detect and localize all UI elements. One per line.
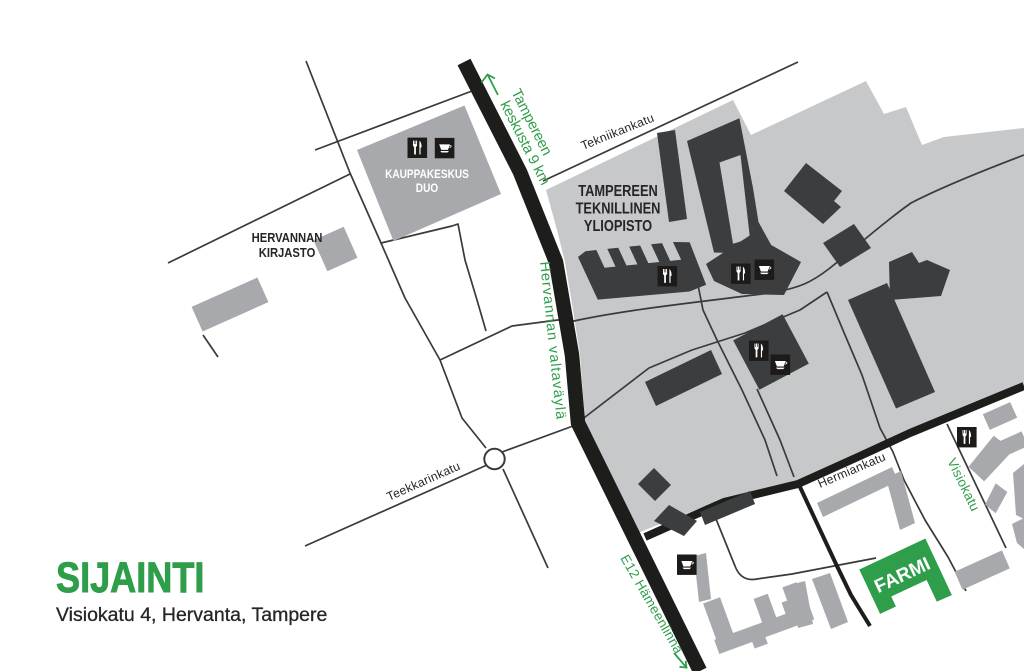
svg-text:YLIOPISTO: YLIOPISTO	[584, 217, 652, 234]
svg-text:SIJAINTI: SIJAINTI	[56, 554, 204, 602]
svg-text:DUO: DUO	[416, 182, 439, 195]
svg-text:KAUPPAKESKUS: KAUPPAKESKUS	[385, 168, 469, 181]
svg-text:KIRJASTO: KIRJASTO	[259, 245, 316, 260]
svg-text:HERVANNAN: HERVANNAN	[252, 230, 323, 245]
svg-text:Visiokatu 4, Hervanta, Tampere: Visiokatu 4, Hervanta, Tampere	[56, 604, 327, 626]
svg-text:TEKNILLINEN: TEKNILLINEN	[576, 199, 661, 216]
svg-text:TAMPEREEN: TAMPEREEN	[578, 182, 658, 199]
